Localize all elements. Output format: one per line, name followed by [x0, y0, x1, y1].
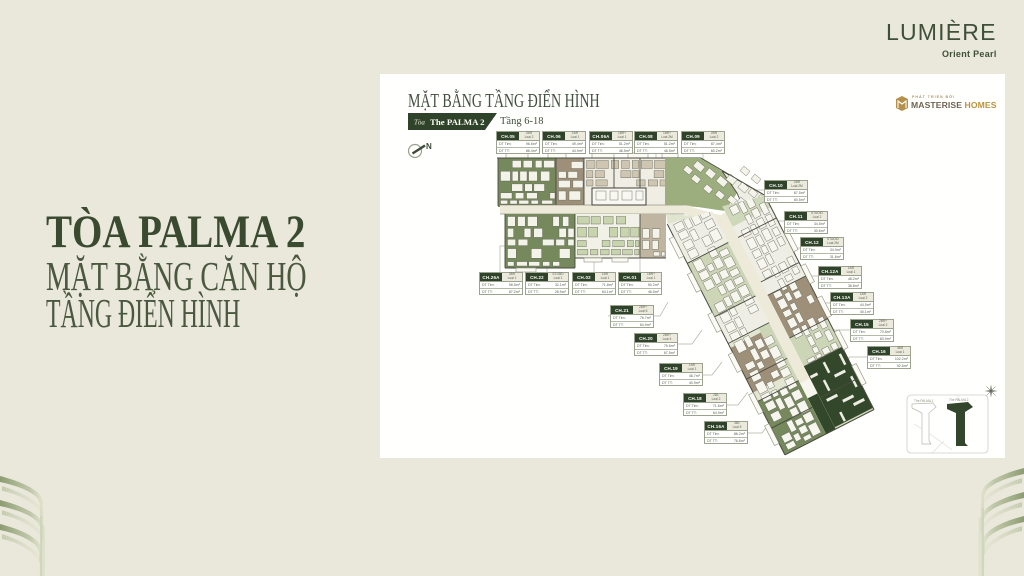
svg-text:The PALMA 1: The PALMA 1: [914, 399, 934, 403]
svg-text:The PALMA 2: The PALMA 2: [949, 398, 969, 402]
